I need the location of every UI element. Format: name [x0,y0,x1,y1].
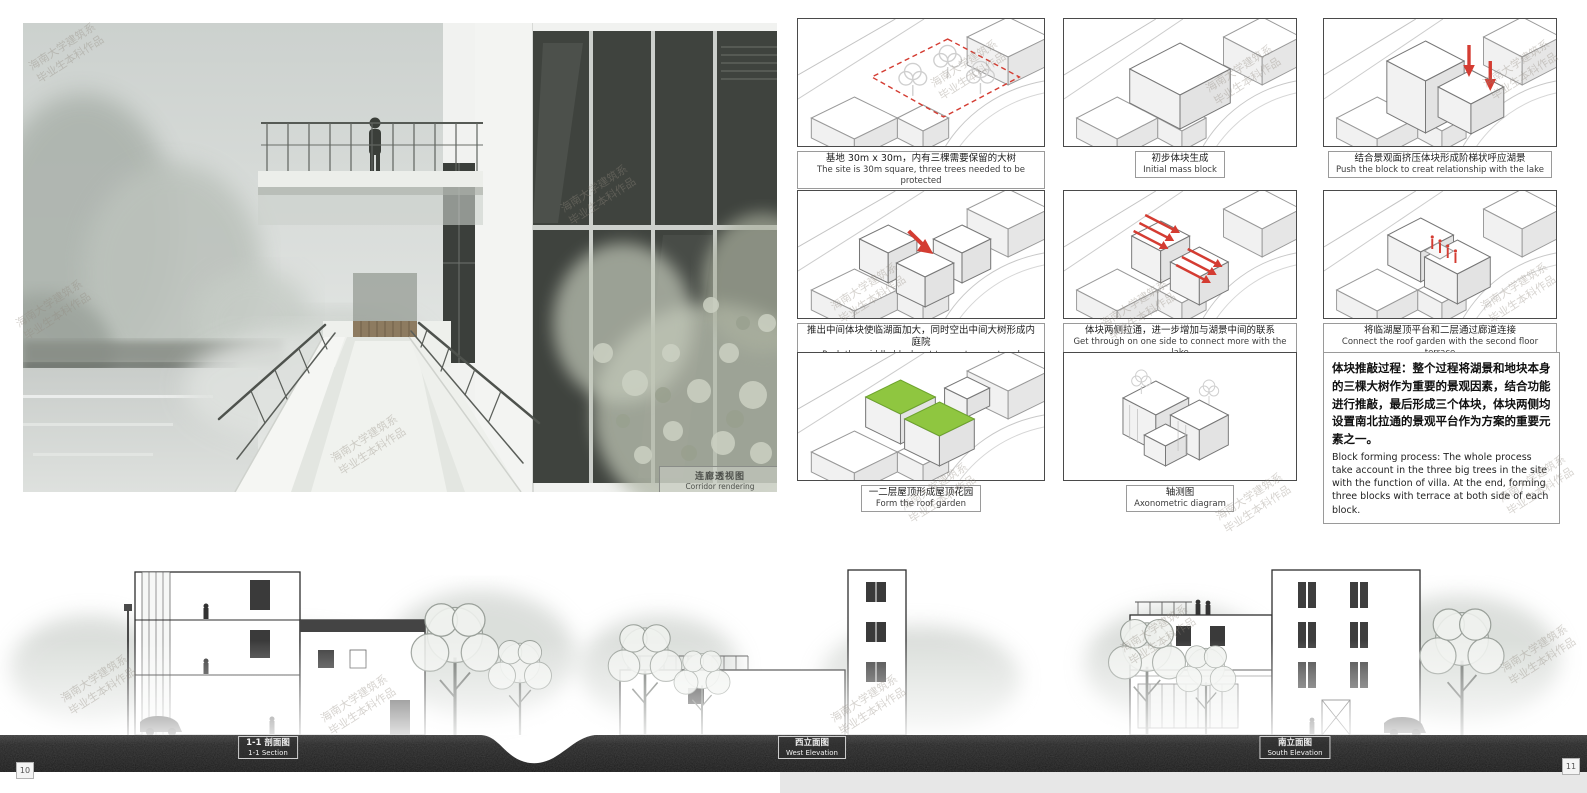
diagram-cell-pull-through: 体块两侧拉通，进一步增加与湖景中间的联系 Get through on one … [1063,190,1297,361]
label-en: South Elevation [1267,749,1322,758]
elevations-scene [0,520,1587,772]
label-zh: 南立面图 [1267,738,1322,749]
label-zh: 1-1 剖面图 [246,738,290,749]
diagram-caption-zh: 一二层屋顶形成屋顶花园 [869,487,974,499]
page-number-left: 10 [16,762,34,779]
diagram-cell-roof-garden: 一二层屋顶形成屋顶花园 Form the roof garden [797,352,1045,512]
diagram-caption-en: Initial mass block [1143,165,1217,176]
diagram-step-block [1323,18,1557,147]
process-note: 体块推敲过程：整个过程将湖景和地块本身的三棵大树作为重要的景观因素，结合功能进行… [1323,352,1560,524]
page-number-right: 11 [1562,758,1580,775]
elevations-strip: 1-1 剖面图 1-1 Section 西立面图 West Elevation … [0,520,1587,772]
label-west-elevation: 西立面图 West Elevation [778,736,846,759]
footer-band [780,772,1587,793]
diagram-caption-zh: 轴测图 [1134,487,1226,499]
label-en: 1-1 Section [246,749,290,758]
rendering-caption: 连廊透视图 Corridor rendering [659,466,777,492]
diagram-caption-en: Axonometric diagram [1134,499,1226,510]
diagram-corridor-connect [1323,190,1557,319]
diagram-pull-through [1063,190,1297,319]
balcony [258,171,483,225]
label-en: West Elevation [786,749,838,758]
label-zh: 西立面图 [786,738,838,749]
process-note-en: Block forming process: The whole process… [1332,451,1551,517]
diagram-cell-step-block: 结合景观面挤压体块形成阶梯状呼应湖景 Push the block to cre… [1323,18,1557,178]
diagram-push-middle [797,190,1045,319]
diagram-cell-corridor-connect: 将临湖屋顶平台和二层通过廊道连接 Connect the roof garden… [1323,190,1557,361]
label-south-elevation: 南立面图 South Elevation [1259,736,1330,759]
diagram-axonometric [1063,352,1297,481]
diagram-initial-mass [1063,18,1297,147]
diagram-site [797,18,1045,147]
diagram-caption-zh: 结合景观面挤压体块形成阶梯状呼应湖景 [1336,153,1544,165]
rendering-scene [23,23,777,492]
process-note-zh: 体块推敲过程：整个过程将湖景和地块本身的三棵大树作为重要的景观因素，结合功能进行… [1332,360,1551,449]
diagram-caption-zh: 推出中间体块使临湖面加大，同时空出中间大树形成内庭院 [805,325,1037,350]
diagram-caption-zh: 将临湖屋顶平台和二层通过廊道连接 [1331,325,1549,337]
diagram-caption-en: Push the block to creat relationship wit… [1336,165,1544,176]
rendering-caption-zh: 连廊透视图 [662,469,777,482]
diagram-caption-en: The site is 30m square, three trees need… [805,165,1037,187]
diagram-cell-axonometric: 轴测图 Axonometric diagram [1063,352,1297,512]
diagram-caption-en: Form the roof garden [869,499,974,510]
presentation-board: 连廊透视图 Corridor rendering 基地 30m x 30m，内有… [0,0,1587,793]
diagram-caption-zh: 基地 30m x 30m，内有三棵需要保留的大树 [805,153,1037,165]
diagram-cell-initial-mass: 初步体块生成 Initial mass block [1063,18,1297,178]
diagram-cell-push-middle: 推出中间体块使临湖面加大，同时空出中间大树形成内庭院 Push the midd… [797,190,1045,363]
diagram-roof-garden [797,352,1045,481]
perspective-rendering: 连廊透视图 Corridor rendering [23,23,777,492]
rendering-caption-en: Corridor rendering [662,482,777,491]
diagram-cell-site: 基地 30m x 30m，内有三棵需要保留的大树 The site is 30m… [797,18,1045,189]
diagram-caption-zh: 体块两侧拉通，进一步增加与湖景中间的联系 [1071,325,1289,337]
label-section-1-1: 1-1 剖面图 1-1 Section [238,736,298,759]
diagram-caption-zh: 初步体块生成 [1143,153,1217,165]
